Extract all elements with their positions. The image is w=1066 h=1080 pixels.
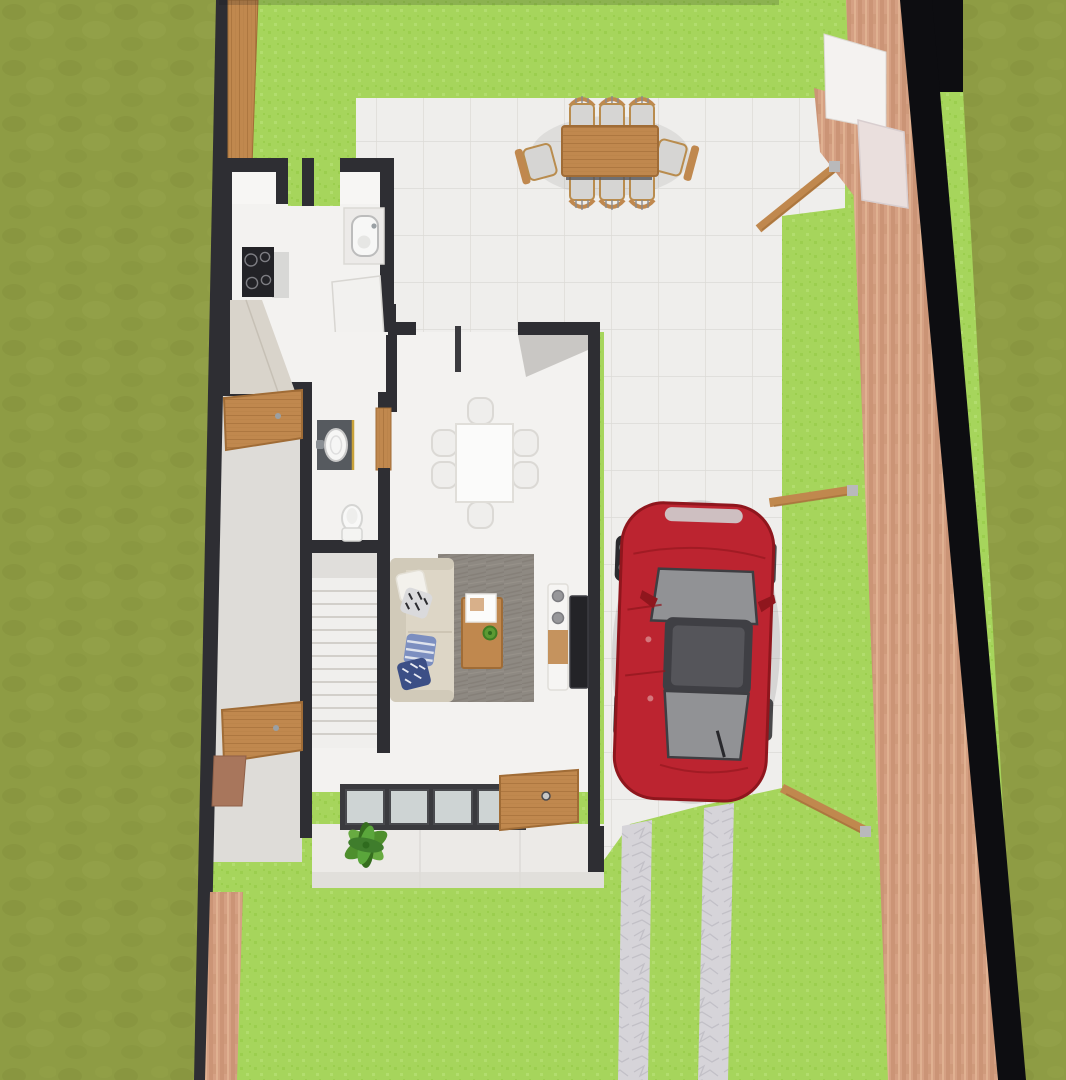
bathroom-wall (378, 392, 390, 410)
outdoor-chair (570, 96, 594, 130)
bathroom-vanity (316, 420, 354, 470)
dining-chair (432, 462, 457, 488)
outdoor-chair (630, 96, 654, 130)
sofa-armrest (390, 690, 454, 702)
boundary-brick-left-bottom (205, 892, 243, 1080)
indoor-dining-table (456, 424, 513, 502)
wood-pillar (212, 756, 246, 806)
door-handle (542, 792, 550, 800)
tv-stand-shelf (548, 630, 568, 664)
glass-pane (390, 790, 428, 824)
kitchen-wall-stub (276, 158, 288, 204)
tv (570, 596, 588, 688)
house-wall-left (300, 392, 312, 838)
courtyard-opening (314, 158, 340, 206)
glass-pane (346, 790, 384, 824)
bathroom-sink (325, 429, 347, 461)
dining-chair (468, 398, 493, 424)
door-handle (273, 725, 279, 731)
sofa (390, 558, 454, 702)
glass-pane (434, 790, 472, 824)
kitchen-cooktop (242, 247, 274, 297)
bathroom-faucet (316, 440, 324, 449)
main-house (300, 322, 604, 872)
stone-wheel-track-left (618, 820, 652, 1080)
kitchen-wall-left (218, 158, 232, 396)
stair-wall-right (377, 553, 390, 753)
toilet (342, 505, 362, 541)
dining-wall-stub (388, 322, 416, 335)
sink-faucet (371, 223, 376, 228)
car-sunroof (671, 625, 745, 687)
floorplan-render (0, 0, 1066, 1080)
speaker (553, 591, 564, 602)
coffee-table (462, 594, 502, 668)
car-rear-window (662, 691, 748, 760)
car-front-trim (665, 507, 743, 524)
speaker (553, 613, 564, 624)
kitchen-sink-counter (344, 208, 384, 264)
front-door (500, 770, 578, 830)
bathroom-wall-bottom (300, 540, 390, 553)
dining-chair (513, 462, 538, 488)
top-boundary-shadow (219, 0, 779, 5)
door-handle (275, 413, 281, 419)
bathroom-wall (378, 468, 390, 542)
house-wall-right (588, 330, 600, 848)
dining-chair (468, 502, 493, 528)
left-yard-grass (0, 0, 219, 1080)
stone-wheel-track-right (698, 803, 734, 1080)
courtyard-opening (288, 158, 302, 206)
toilet-tank (342, 528, 362, 541)
sink-drain (358, 236, 371, 249)
outdoor-chair (600, 96, 624, 130)
magazine-photo (470, 598, 484, 611)
scene-canvas (0, 0, 1066, 1080)
staircase (312, 553, 390, 753)
dining-wall-top (518, 322, 600, 335)
open-door-leaf (455, 326, 461, 372)
oven-front (272, 252, 289, 298)
stair-landing (312, 553, 377, 578)
car-windshield (651, 568, 759, 624)
outdoor-dining-table (562, 126, 658, 176)
kitchen-wall-stub (302, 158, 314, 206)
dining-chair (513, 430, 538, 456)
marble-gate-pillar (858, 120, 908, 208)
dining-chair (432, 430, 457, 456)
house-corner-stub (588, 826, 604, 872)
red-car (607, 497, 786, 807)
bathroom-door (376, 408, 391, 470)
tv-stand (548, 584, 568, 690)
sofa-armrest (390, 558, 454, 570)
